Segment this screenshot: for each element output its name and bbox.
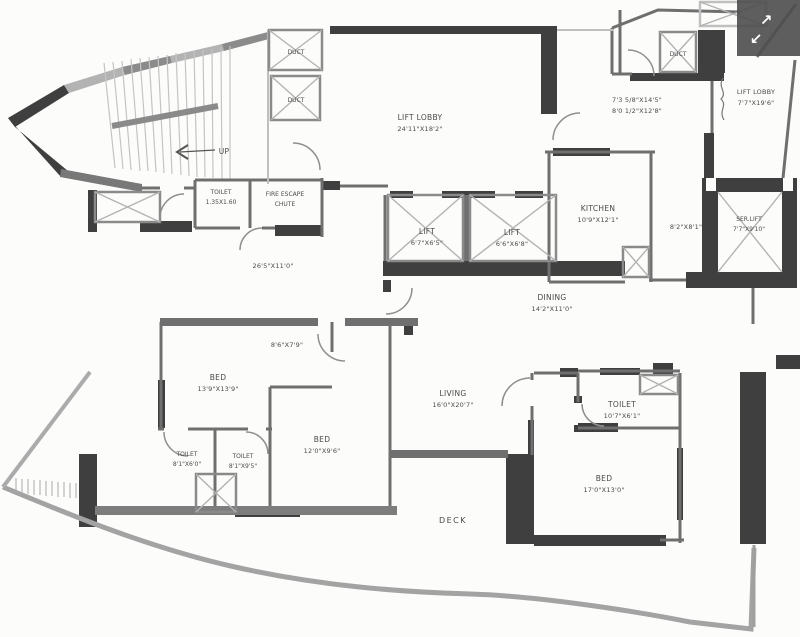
expand-ne-icon[interactable]: ↗ <box>760 11 773 29</box>
toilet-small-dims: 1.35X1.60 <box>206 199 237 206</box>
kitchen-name: KITCHEN <box>581 204 616 213</box>
foyer-dims-1: 7'3 5/8"X14'5" <box>612 96 662 104</box>
dining-dims: 14'2"X11'0" <box>531 305 572 313</box>
toilet-bl1-name: TOILET <box>176 451 198 458</box>
lift-lobby-right-name: LIFT LOBBY <box>737 88 775 96</box>
passage-dims-right: 8'2"X8'1" <box>670 223 702 231</box>
lift-lobby-main-dims: 24'11"X18'2" <box>397 125 442 133</box>
lift2-name: LIFT <box>504 228 520 237</box>
duct3-label: DUCT <box>670 51 687 58</box>
duct2-label: DUCT <box>288 97 305 104</box>
floor-plan-viewer: UP <box>0 0 800 637</box>
lift-lobby-right-dims: 7'7"X19'6" <box>738 99 775 107</box>
lift1-dims: 6'7"X6'5" <box>411 239 443 247</box>
dining-name: DINING <box>537 293 566 302</box>
passage-dims-left: 26'5"X11'0" <box>252 262 293 270</box>
up-label: UP <box>219 147 230 156</box>
bed1-dims: 13'9"X13'9" <box>197 385 238 393</box>
bed2-dims: 12'0"X9'6" <box>304 447 341 455</box>
lift1-name: LIFT <box>419 227 435 236</box>
bed3-dims: 17'0"X13'0" <box>583 486 624 494</box>
living-name: LIVING <box>440 389 467 398</box>
lift2-dims: 6'6"X6'8" <box>496 240 528 248</box>
kitchen-dims: 10'9"X12'1" <box>577 216 618 224</box>
ser-lift-dims: 7'7"X9'10" <box>733 226 765 233</box>
fire-escape-line2: CHUTE <box>275 201 296 208</box>
fullscreen-overlay[interactable]: ↗ ↙ <box>737 0 800 56</box>
ser-lift-name: SER.LIFT <box>736 216 762 223</box>
toilet-bl1-dims: 8'1"X6'0" <box>173 461 201 468</box>
fire-escape-line1: FIRE ESCAPE <box>266 191 305 198</box>
toilet-bl2-name: TOILET <box>232 453 254 460</box>
toilet-bl2-dims: 8'1"X9'5" <box>229 463 257 470</box>
toilet-br-dims: 10'7"X6'1" <box>604 412 641 420</box>
foyer-dims-2: 8'0 1/2"X12'8" <box>612 107 662 115</box>
toilet-br-name: TOILET <box>607 400 636 409</box>
toilet-small-name: TOILET <box>210 189 232 196</box>
expand-sw-icon[interactable]: ↙ <box>750 30 763 48</box>
deck-label: DECK <box>439 516 467 525</box>
duct1-label: DUCT <box>288 49 305 56</box>
floor-plan-svg: UP <box>0 0 800 637</box>
foyer2-dims: 8'6"X7'9" <box>271 341 303 349</box>
lift-lobby-main-name: LIFT LOBBY <box>398 113 443 122</box>
bed3-name: BED <box>596 474 613 483</box>
bed2-name: BED <box>314 435 331 444</box>
bed1-name: BED <box>210 373 227 382</box>
living-dims: 16'0"X20'7" <box>432 401 473 409</box>
